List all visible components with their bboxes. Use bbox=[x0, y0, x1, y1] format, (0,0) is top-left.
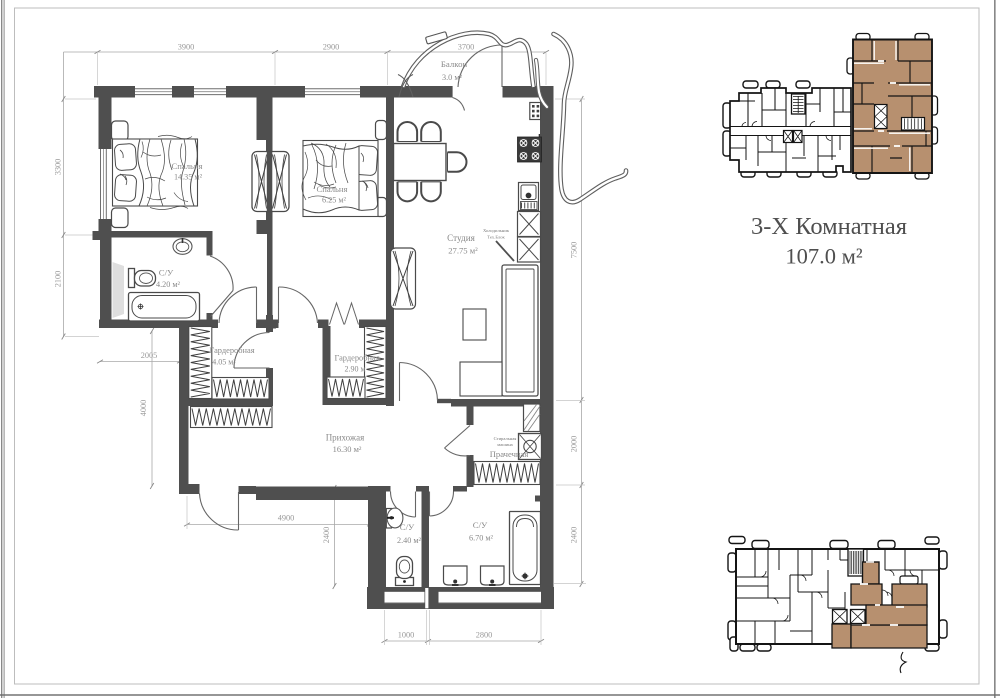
svg-text:машина: машина bbox=[497, 442, 512, 447]
svg-text:Прачечная: Прачечная bbox=[490, 449, 529, 459]
svg-text:1000: 1000 bbox=[398, 631, 415, 640]
svg-text:3700: 3700 bbox=[458, 43, 475, 52]
svg-text:Студия: Студия bbox=[447, 233, 476, 243]
svg-text:4900: 4900 bbox=[278, 514, 295, 523]
svg-text:Балкон: Балкон bbox=[441, 59, 468, 69]
svg-text:4.20 м²: 4.20 м² bbox=[156, 280, 181, 289]
svg-text:С/У: С/У bbox=[400, 522, 415, 532]
svg-text:2005: 2005 bbox=[141, 351, 158, 360]
svg-text:С/У: С/У bbox=[473, 520, 488, 530]
svg-text:Стиральная: Стиральная bbox=[494, 436, 518, 441]
svg-text:Прихожая: Прихожая bbox=[326, 433, 365, 443]
svg-text:С/У: С/У bbox=[159, 268, 174, 278]
svg-text:7500: 7500 bbox=[570, 242, 579, 259]
svg-text:3.0 м²: 3.0 м² bbox=[442, 73, 462, 82]
svg-text:2000: 2000 bbox=[570, 436, 579, 453]
svg-text:3300: 3300 bbox=[54, 159, 63, 176]
svg-text:2.40 м²: 2.40 м² bbox=[397, 536, 422, 545]
svg-text:2400: 2400 bbox=[570, 527, 579, 544]
svg-text:Спальня: Спальня bbox=[172, 161, 203, 171]
svg-text:2900: 2900 bbox=[323, 43, 340, 52]
svg-text:Тех.Блок: Тех.Блок bbox=[487, 235, 505, 240]
svg-text:4.05 м²: 4.05 м² bbox=[212, 358, 236, 367]
svg-text:16.30 м²: 16.30 м² bbox=[333, 445, 362, 454]
svg-text:107.0 м²: 107.0 м² bbox=[785, 244, 862, 269]
svg-text:2.90 м: 2.90 м bbox=[344, 365, 365, 374]
svg-text:6.25 м²: 6.25 м² bbox=[322, 196, 347, 205]
svg-text:Гардеробная: Гардеробная bbox=[334, 354, 379, 363]
svg-text:3-Х Комнатная: 3-Х Комнатная bbox=[751, 213, 907, 240]
svg-text:6.70 м²: 6.70 м² bbox=[469, 534, 494, 543]
svg-text:27.75 м²: 27.75 м² bbox=[448, 246, 478, 256]
svg-text:3900: 3900 bbox=[178, 43, 195, 52]
svg-text:4000: 4000 bbox=[139, 400, 148, 417]
svg-text:2800: 2800 bbox=[476, 631, 493, 640]
svg-text:Холодильник: Холодильник bbox=[483, 228, 510, 233]
svg-text:14.35 м²: 14.35 м² bbox=[174, 173, 203, 182]
svg-text:Спальня: Спальня bbox=[317, 184, 348, 194]
svg-text:Гардеробная: Гардеробная bbox=[209, 346, 254, 355]
svg-text:2100: 2100 bbox=[54, 271, 63, 288]
svg-text:2400: 2400 bbox=[322, 527, 331, 544]
